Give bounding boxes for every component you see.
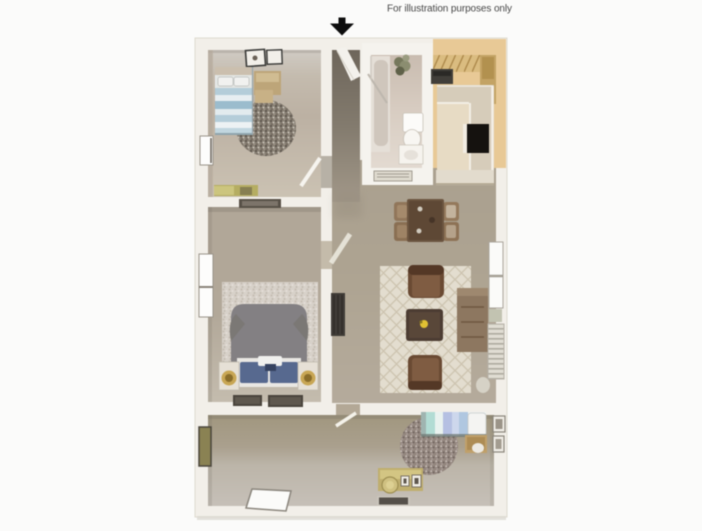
svg-text:For illustration purposes only: For illustration purposes only (387, 4, 512, 15)
